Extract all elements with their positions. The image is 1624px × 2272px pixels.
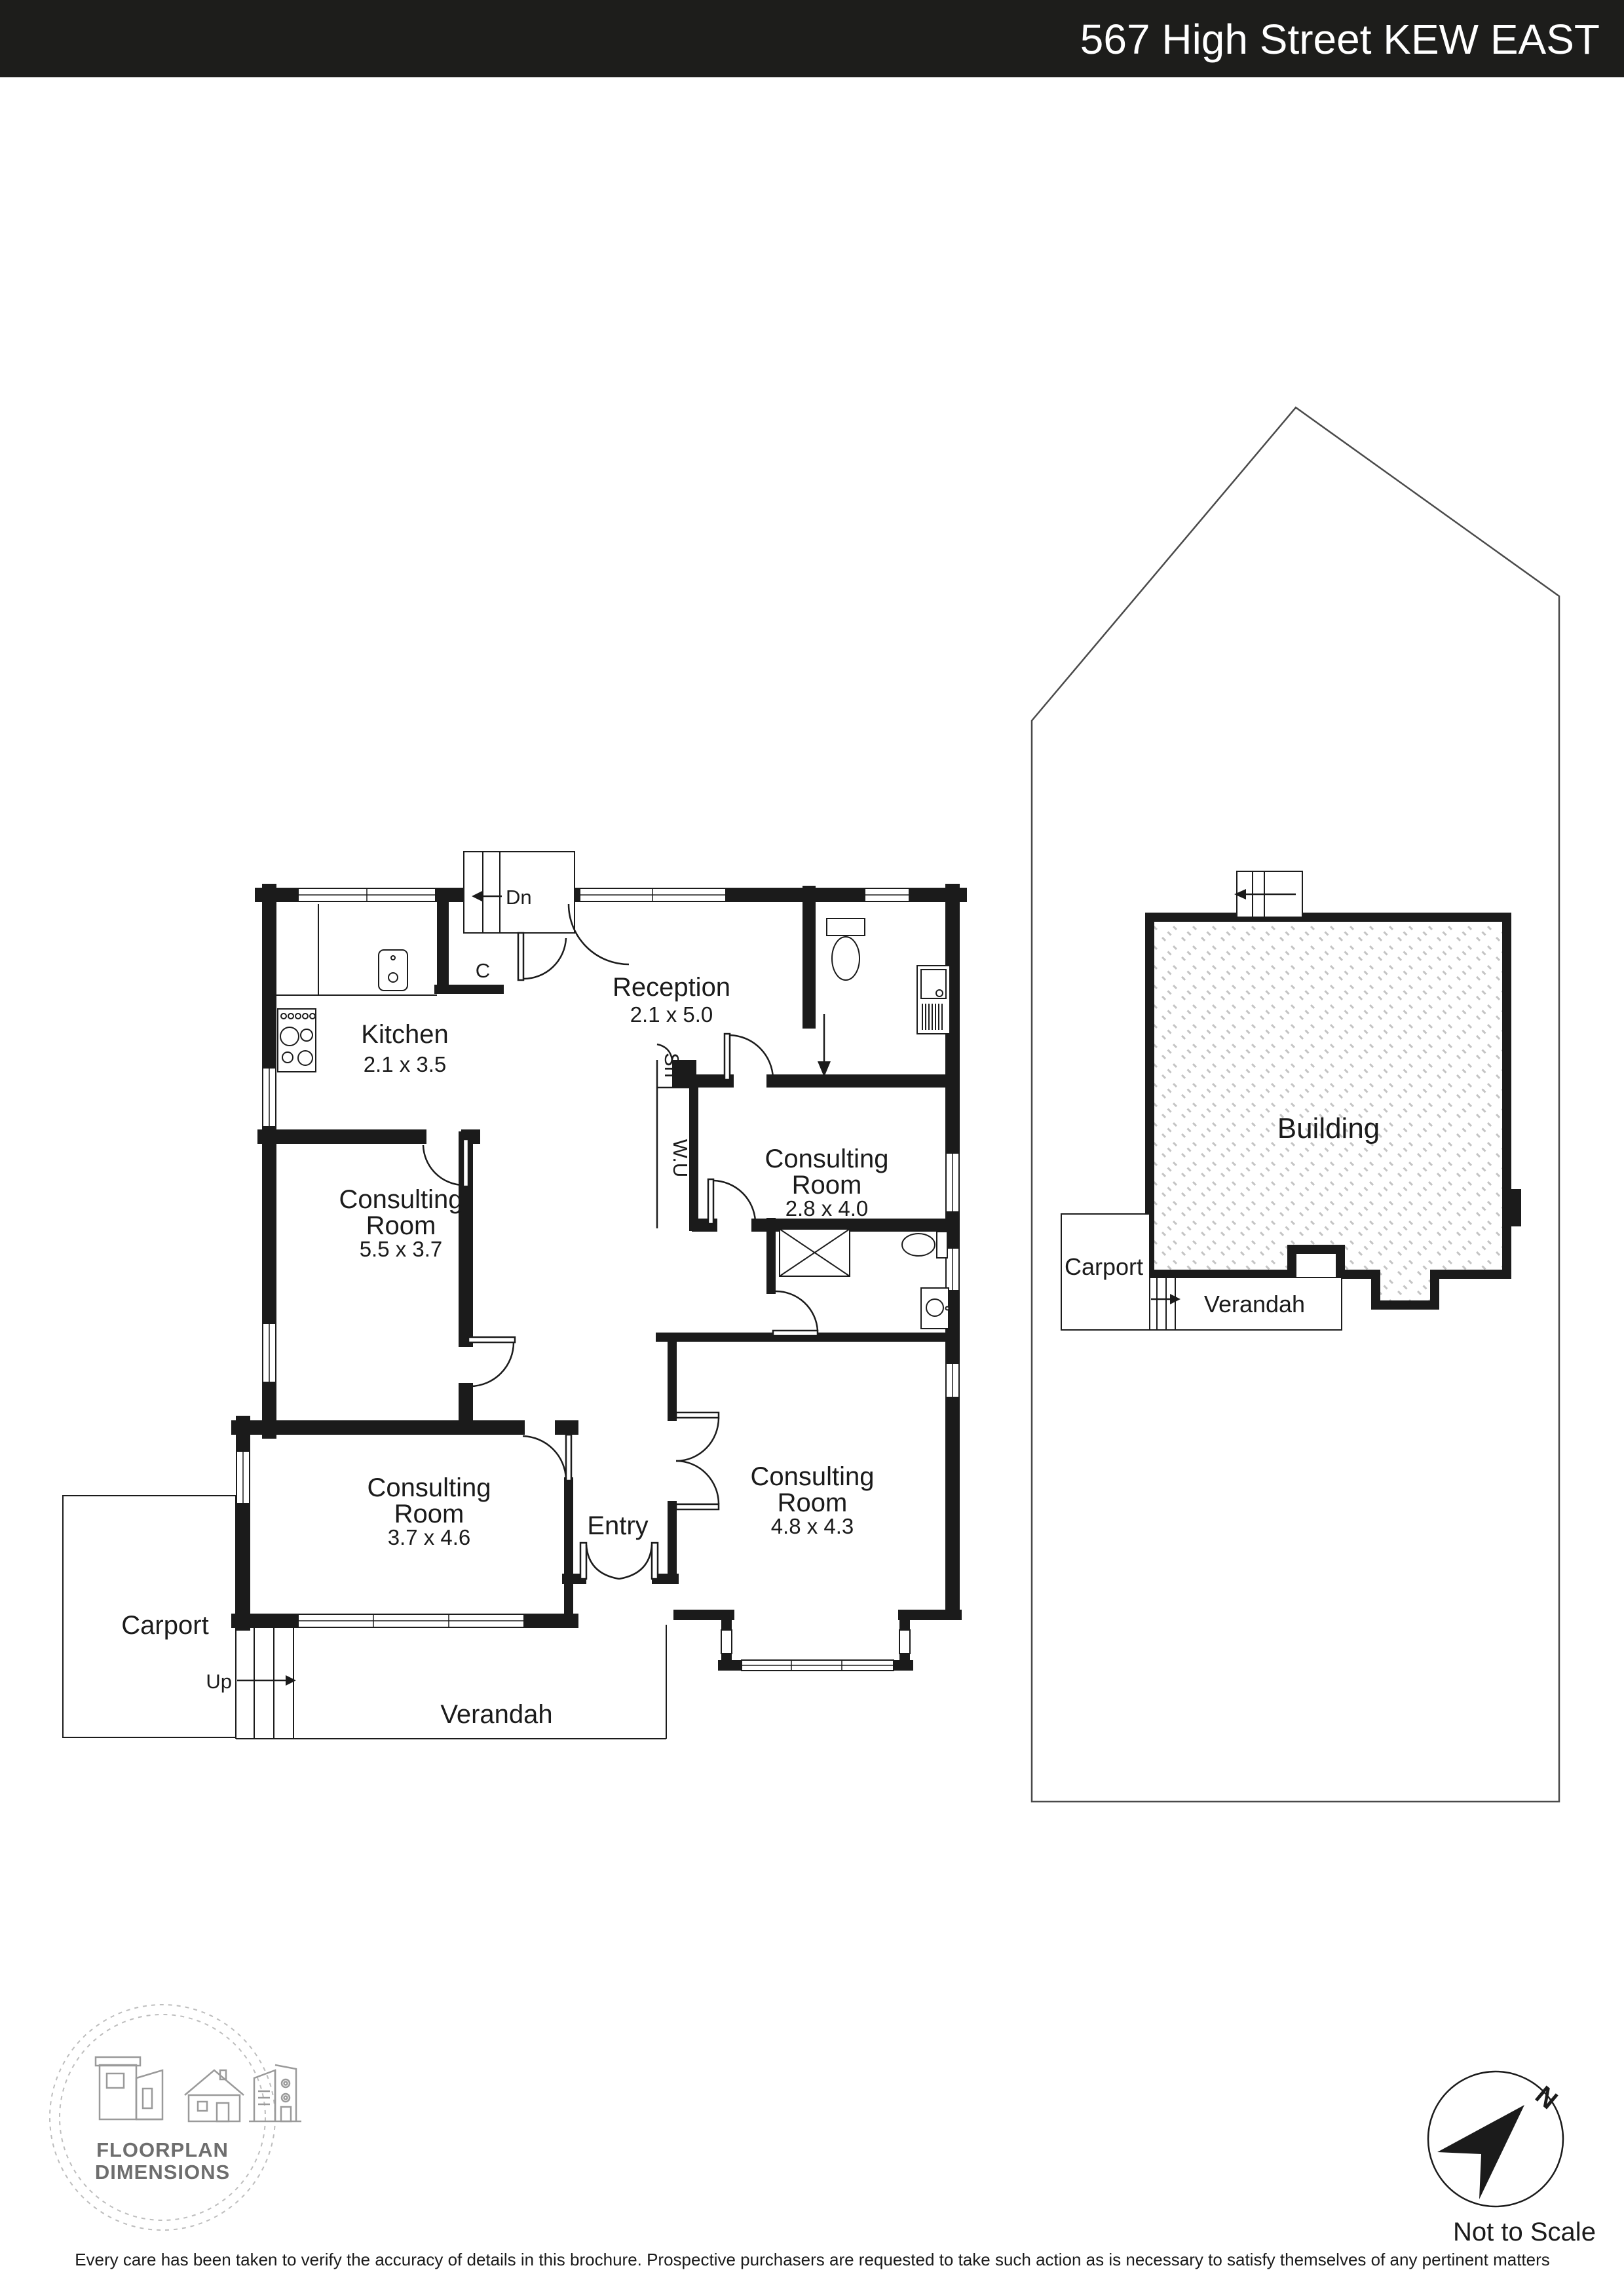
rear-carport-label: Carport [1065,1253,1143,1280]
door-stair-landing [518,933,566,980]
consulting-d-label2: Room [778,1488,848,1517]
kitchen-label: Kitchen [361,1020,448,1049]
consulting-d-label1: Consulting [750,1462,874,1491]
consulting-a-label1: Consulting [765,1145,888,1173]
main-house: Kitchen 2.1 x 3.5 Reception 2.1 x 5.0 Co… [63,852,960,1739]
door-consulting-28-south [708,1179,755,1224]
consulting-b-dims: 5.5 x 3.7 [360,1237,443,1261]
toilet-icon-south [902,1232,947,1258]
door-consulting-37 [523,1435,571,1481]
kitchen-sink-icon [379,950,407,991]
main-verandah-label: Verandah [440,1700,552,1729]
main-carport-label: Carport [121,1611,208,1640]
logo-buildings-icon [96,2057,301,2121]
page-title: 567 High Street KEW EAST [1080,16,1600,63]
not-to-scale-label: Not to Scale [1453,2218,1596,2246]
consulting-a-dims: 2.8 x 4.0 [785,1196,869,1221]
logo-line2: DIMENSIONS [95,2161,230,2184]
laundry-sink-icon [917,966,950,1034]
rear-door-arrow [818,1014,831,1077]
floorplan-dimensions-logo: FLOORPLAN DIMENSIONS [50,2005,301,2230]
stairs-down-label: Dn [506,886,532,909]
rear-building-chimney [1503,1189,1521,1226]
consulting-c-dims: 3.7 x 4.6 [388,1525,471,1549]
north-letter: N [1530,2081,1562,2115]
reception-dims: 2.1 x 5.0 [630,1002,713,1027]
closet-label: C [476,959,490,982]
fixtures [276,904,950,1329]
consulting-b-label1: Consulting [339,1185,463,1214]
compass: N Not to Scale [1428,2072,1596,2246]
rear-verandah-label: Verandah [1204,1291,1305,1317]
utility-label: W.U [669,1139,692,1178]
shower-label: Sh [660,1053,683,1078]
windows [236,888,959,1671]
header-bar: 567 High Street KEW EAST [0,0,1624,77]
walls [238,891,960,1665]
door-front-entry-double [580,1543,658,1579]
north-arrow-icon [1437,2105,1524,2199]
door-bathroom [773,1291,818,1336]
toilet-icon-north [827,918,865,980]
door-consulting-48-double [676,1412,719,1509]
floorplan-page: 567 High Street KEW EAST Building Verand… [0,0,1624,2272]
consulting-c-label1: Consulting [367,1473,491,1502]
logo-line1: FLOORPLAN [96,2138,229,2161]
entry-label: Entry [587,1511,648,1540]
door-consulting-55 [468,1337,515,1386]
rear-building-outline [1150,917,1507,1305]
rear-property: Building Verandah Carport [1032,407,1559,1802]
stairs-up-arrow [237,1675,296,1686]
basin-icon [921,1288,949,1329]
door-consulting-28-north [725,1034,773,1080]
consulting-c-label2: Room [394,1500,464,1528]
door-rear-entry-swing [569,904,629,964]
disclaimer-text: Every care has been taken to verify the … [75,2250,1550,2269]
rear-building-label: Building [1277,1112,1380,1145]
consulting-a-label2: Room [792,1171,862,1200]
kitchen-dims: 2.1 x 3.5 [364,1052,447,1076]
consulting-d-dims: 4.8 x 4.3 [771,1514,854,1538]
reception-label: Reception [613,973,730,1002]
consulting-b-label2: Room [366,1211,436,1240]
stairs-up-label: Up [206,1670,232,1693]
crossed-box-icon [780,1229,850,1276]
stove-icon [278,1009,316,1072]
